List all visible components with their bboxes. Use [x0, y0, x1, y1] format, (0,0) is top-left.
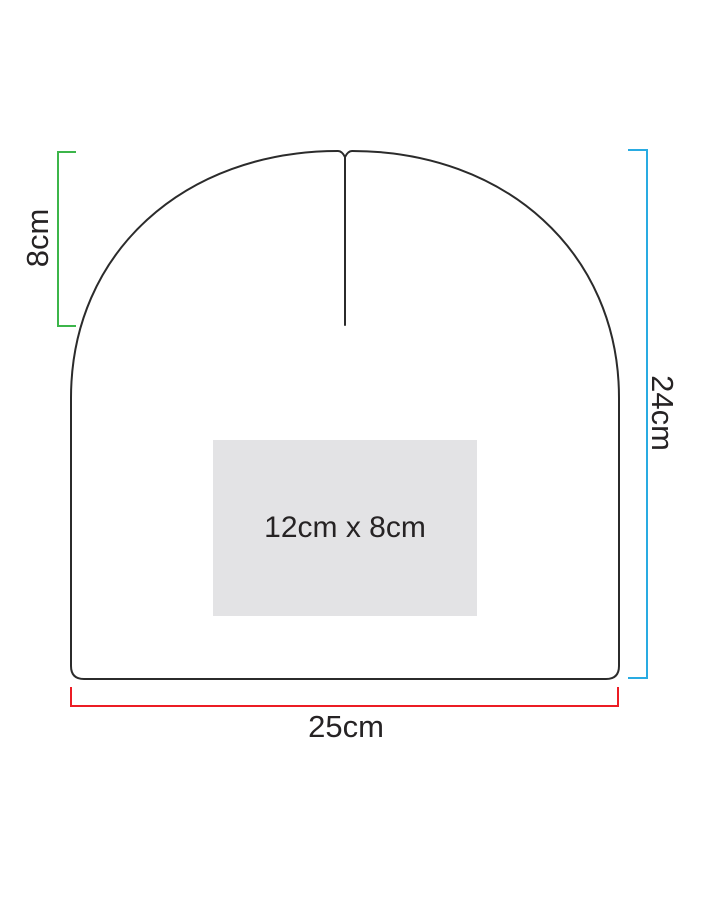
width-label: 25cm — [276, 710, 416, 744]
width-bracket — [71, 687, 618, 706]
total-height-label: 24cm — [645, 343, 679, 483]
crown-height-label: 8cm — [21, 168, 55, 308]
crown-height-bracket — [58, 152, 76, 326]
beanie-dimension-diagram: 8cm 24cm 25cm 12cm x 8cm — [0, 0, 706, 900]
print-area-label: 12cm x 8cm — [213, 440, 477, 616]
